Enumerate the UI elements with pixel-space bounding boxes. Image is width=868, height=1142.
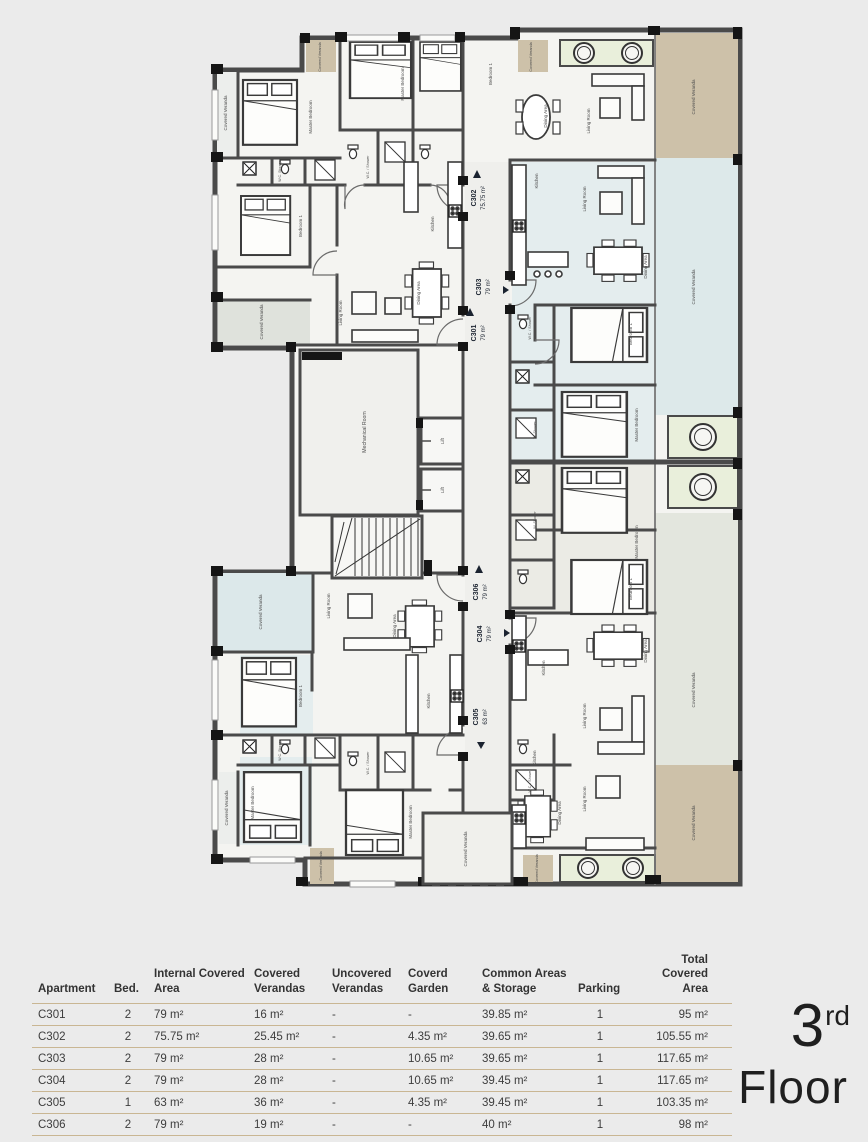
room-label-wc-shower: W.C. / Shower [366, 155, 370, 179]
room-label-lift: Lift [440, 486, 445, 493]
col-header-apartment: Apartment [32, 982, 108, 996]
veranda-gray-box-top-left [218, 300, 310, 345]
veranda-bottom-left-blue [218, 573, 313, 652]
cell-internal: 79 m² [148, 1009, 248, 1021]
room-label-wc-shower: W.C. / Shower [366, 751, 370, 775]
veranda-bottom-right-tan [655, 765, 738, 882]
staircase [332, 516, 422, 578]
bed [346, 790, 403, 855]
cell-parking: 1 [572, 1119, 628, 1131]
room-label-mechanical-room: Mechanical Room [362, 411, 368, 453]
svg-text:63 m²: 63 m² [483, 709, 489, 724]
bed [242, 658, 296, 726]
floor-plan: Covered Veranda Covered Veranda Covered … [0, 0, 868, 940]
col-header-internal: Internal Covered Area [148, 967, 248, 996]
room-label-kitchen: Kitchen [532, 750, 537, 766]
cell-apartment: C303 [32, 1053, 108, 1065]
bed [243, 80, 297, 145]
cell-covered-garden: - [402, 1119, 476, 1131]
room-label-covered-veranda: Covered Veranda [529, 41, 533, 71]
svg-text:79 m²: 79 m² [486, 279, 492, 294]
cell-apartment: C305 [32, 1097, 108, 1109]
table-header-row: Apartment Bed. Internal Covered Area Cov… [32, 953, 732, 1004]
room-label-dining-area: Dining Area [643, 255, 648, 279]
room-label-covered-veranda: Covered Veranda [224, 790, 229, 826]
room-label-covered-veranda: Covered Veranda [258, 594, 263, 630]
cell-covered-verandas: 28 m² [248, 1075, 326, 1087]
cell-covered-verandas: 16 m² [248, 1009, 326, 1021]
room-label-living-room: Living Room [326, 593, 331, 618]
room-label-covered-veranda: Covered Veranda [223, 95, 228, 131]
cell-uncovered-verandas: - [326, 1053, 402, 1065]
bed [562, 392, 627, 457]
cell-uncovered-verandas: - [326, 1075, 402, 1087]
veranda-right-gray [655, 513, 738, 765]
veranda-top-small-tan-2 [518, 40, 548, 72]
area-table: Apartment Bed. Internal Covered Area Cov… [32, 953, 732, 1136]
cell-parking: 1 [572, 1075, 628, 1087]
cell-total: 105.55 m² [628, 1031, 732, 1043]
svg-text:79 m²: 79 m² [481, 325, 487, 340]
cell-total: 103.35 m² [628, 1097, 732, 1109]
room-label-covered-veranda: Covered Veranda [259, 304, 264, 340]
cell-uncovered-verandas: - [326, 1009, 402, 1021]
cell-bed: 2 [108, 1053, 148, 1065]
cell-covered-garden: 4.35 m² [402, 1097, 476, 1109]
cell-covered-garden: - [402, 1009, 476, 1021]
room-label-covered-veranda: Covered Veranda [691, 79, 696, 115]
room-label-master-bedroom: Master Bedroom [400, 67, 405, 101]
cell-total: 117.65 m² [628, 1075, 732, 1087]
room-label-covered-veranda: Covered Veranda [463, 831, 468, 867]
col-header-total: Total Covered Area [628, 953, 732, 996]
cell-uncovered-verandas: - [326, 1031, 402, 1043]
cell-total: 95 m² [628, 1009, 732, 1021]
room-label-kitchen: Kitchen [534, 173, 539, 189]
svg-text:79 m²: 79 m² [487, 626, 493, 641]
svg-text:C302: C302 [471, 190, 478, 207]
cell-common-areas: 39.65 m² [476, 1031, 572, 1043]
cell-common-areas: 39.65 m² [476, 1053, 572, 1065]
room-label-dining-area: Dining Area [643, 639, 648, 663]
cell-parking: 1 [572, 1031, 628, 1043]
bed [241, 196, 290, 255]
bed [420, 42, 461, 91]
cell-covered-garden: 10.65 m² [402, 1075, 476, 1087]
col-header-common-areas: Common Areas & Storage [476, 967, 572, 996]
room-label-kitchen: Kitchen [430, 216, 435, 232]
cell-covered-garden: 4.35 m² [402, 1031, 476, 1043]
room-label-master-bedroom: Master Bedroom [634, 525, 639, 559]
table-row: C305 1 63 m² 36 m² - 4.35 m² 39.45 m² 1 … [32, 1092, 732, 1114]
cell-internal: 79 m² [148, 1075, 248, 1087]
col-header-bed: Bed. [108, 982, 148, 996]
room-label-dining-area: Dining Area [416, 281, 421, 305]
cell-bed: 2 [108, 1075, 148, 1087]
cell-total: 98 m² [628, 1119, 732, 1131]
room-label-wc-storage: W.C. Storage [278, 739, 282, 760]
floor-plan-svg: Covered Veranda Covered Veranda Covered … [0, 0, 868, 940]
cell-apartment: C306 [32, 1119, 108, 1131]
room-label-covered-veranda: Covered Veranda [318, 41, 322, 71]
col-header-covered-garden: Coverd Garden [402, 967, 476, 996]
cell-covered-garden: 10.65 m² [402, 1053, 476, 1065]
cell-uncovered-verandas: - [326, 1119, 402, 1131]
room-label-bedroom1: Bedroom 1 [298, 214, 303, 237]
corridor-floor [465, 162, 510, 860]
room-label-wc-storage: W.C. Storage [278, 160, 282, 181]
floor-number-digit: 3 [791, 992, 825, 1059]
floor-number-ordinal: rd [825, 1000, 850, 1031]
cell-apartment: C301 [32, 1009, 108, 1021]
veranda-right-blue [655, 158, 738, 415]
room-label-master-bedroom: Master Bedroom [308, 100, 313, 134]
cell-parking: 1 [572, 1097, 628, 1109]
cell-parking: 1 [572, 1009, 628, 1021]
room-label-covered-veranda: Covered Veranda [535, 853, 539, 883]
svg-text:75.75 m²: 75.75 m² [481, 186, 487, 210]
room-label-kitchen: Kitchen [426, 693, 431, 709]
room-label-covered-veranda: Covered Veranda [691, 672, 696, 708]
col-header-uncovered-verandas: Uncovered Verandas [326, 967, 402, 996]
cell-bed: 1 [108, 1097, 148, 1109]
floor-word: Floor [722, 1064, 864, 1110]
room-label-bedroom1: Bedroom 1 [628, 322, 633, 345]
table-row: C304 2 79 m² 28 m² - 10.65 m² 39.45 m² 1… [32, 1070, 732, 1092]
room-label-living-room: Living Room [338, 300, 343, 325]
room-label-dining-area: Dining Area [557, 801, 562, 825]
room-label-master-bedroom: Master Bedroom [634, 408, 639, 442]
cell-total: 117.65 m² [628, 1053, 732, 1065]
cell-internal: 75.75 m² [148, 1031, 248, 1043]
cell-common-areas: 39.45 m² [476, 1097, 572, 1109]
bed [571, 560, 647, 614]
col-header-parking: Parking [572, 982, 628, 996]
cell-covered-verandas: 36 m² [248, 1097, 326, 1109]
room-label-w-shower: W. Shower [533, 511, 537, 529]
svg-text:C301: C301 [471, 325, 478, 342]
room-label-bedroom1: Bedroom 1 [298, 684, 303, 707]
room-label-bedroom1: Bedroom 1 [488, 62, 493, 85]
cell-uncovered-verandas: - [326, 1097, 402, 1109]
room-label-covered-veranda: Covered Veranda [691, 805, 696, 841]
room-label-dining-area: Dining Area [543, 104, 548, 128]
cell-common-areas: 39.85 m² [476, 1009, 572, 1021]
room-label-living-room: Living Room [582, 786, 587, 811]
room-label-wc-shower: W.C. / Shower [528, 769, 532, 793]
table-row: C302 2 75.75 m² 25.45 m² - 4.35 m² 39.65… [32, 1026, 732, 1048]
cell-internal: 79 m² [148, 1119, 248, 1131]
room-label-dining-area: Dining Area [392, 614, 397, 638]
cell-common-areas: 39.45 m² [476, 1075, 572, 1087]
svg-text:C306: C306 [473, 584, 480, 601]
room-label-living-room: Living Room [582, 186, 587, 211]
table-row: C301 2 79 m² 16 m² - - 39.85 m² 1 95 m² [32, 1004, 732, 1026]
cell-parking: 1 [572, 1053, 628, 1065]
cell-covered-verandas: 19 m² [248, 1119, 326, 1131]
cell-bed: 2 [108, 1031, 148, 1043]
svg-text:79 m²: 79 m² [483, 584, 489, 599]
room-label-master-bedroom: Master Bedroom [408, 805, 413, 839]
room-label-w-shower: W. Shower [533, 421, 537, 439]
cell-covered-verandas: 25.45 m² [248, 1031, 326, 1043]
cell-apartment: C302 [32, 1031, 108, 1043]
svg-text:C305: C305 [473, 709, 480, 726]
cell-internal: 79 m² [148, 1053, 248, 1065]
room-label-kitchen: Kitchen [541, 660, 546, 676]
cell-internal: 63 m² [148, 1097, 248, 1109]
cell-apartment: C304 [32, 1075, 108, 1087]
svg-text:C303: C303 [476, 279, 483, 296]
cell-bed: 2 [108, 1009, 148, 1021]
veranda-top-right-tan [655, 33, 738, 158]
mechanical-room [300, 350, 418, 515]
room-label-covered-veranda: Covered Veranda [319, 850, 323, 880]
cell-covered-verandas: 28 m² [248, 1053, 326, 1065]
bed [562, 468, 627, 533]
cell-common-areas: 40 m² [476, 1119, 572, 1131]
svg-text:C304: C304 [477, 626, 484, 643]
room-label-bedroom1: Bedroom 1 [628, 577, 633, 600]
col-header-covered-verandas: Covered Verandas [248, 967, 326, 996]
room-label-living-room: Living Room [582, 703, 587, 728]
floor-number: 3rd [722, 996, 864, 1056]
cell-bed: 2 [108, 1119, 148, 1131]
room-label-living-room: Living Room [586, 108, 591, 133]
room-label-covered-veranda: Covered Veranda [691, 269, 696, 305]
room-label-lift: Lift [440, 437, 445, 444]
bed [571, 308, 647, 362]
table-row: C306 2 79 m² 19 m² - - 40 m² 1 98 m² [32, 1114, 732, 1136]
floor-title: 3rd Floor [722, 996, 864, 1110]
table-row: C303 2 79 m² 28 m² - 10.65 m² 39.65 m² 1… [32, 1048, 732, 1070]
room-label-wc-shower: W.C. / Shower [528, 316, 532, 340]
room-label-master-bedroom: Master Bedroom [250, 786, 255, 820]
